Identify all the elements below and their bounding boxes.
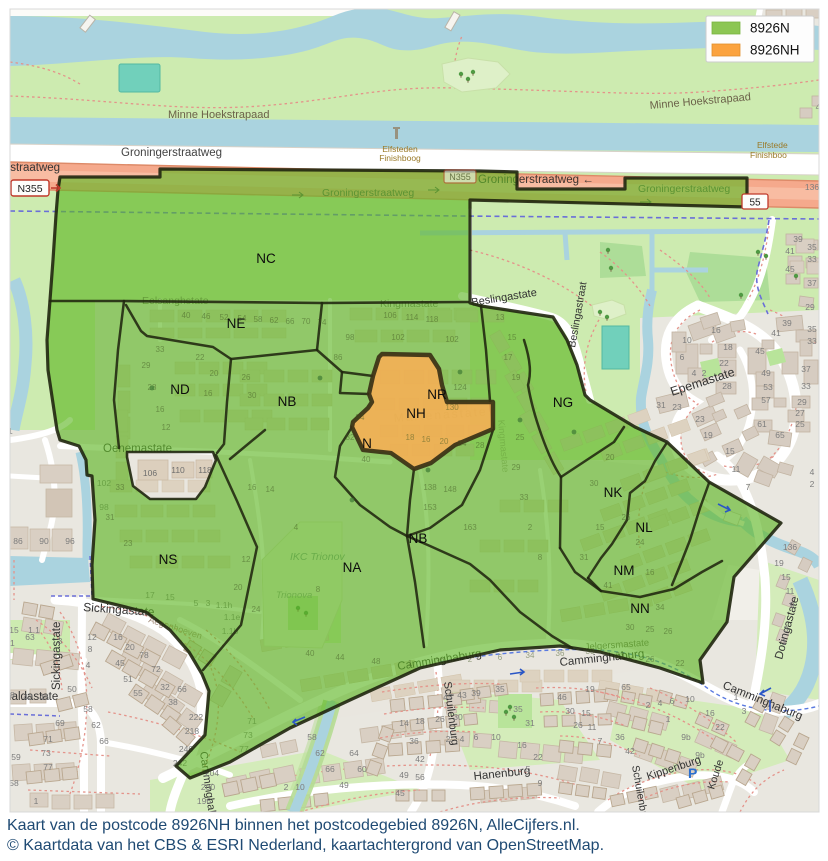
svg-text:24: 24 <box>458 439 467 448</box>
svg-text:42: 42 <box>415 754 425 764</box>
svg-text:Finishboo: Finishboo <box>750 150 787 160</box>
svg-text:40: 40 <box>182 311 191 320</box>
svg-text:P: P <box>688 765 697 781</box>
svg-text:26: 26 <box>664 627 673 636</box>
svg-text:30: 30 <box>565 706 575 716</box>
svg-text:2: 2 <box>702 368 707 378</box>
svg-text:Elfstede: Elfstede <box>757 140 788 150</box>
svg-text:218: 218 <box>185 726 199 736</box>
svg-text:102: 102 <box>391 333 405 342</box>
svg-text:200: 200 <box>201 782 215 792</box>
svg-text:2: 2 <box>284 782 289 792</box>
svg-text:46: 46 <box>202 312 211 321</box>
svg-text:4: 4 <box>86 660 91 670</box>
svg-text:6: 6 <box>498 653 503 662</box>
svg-text:34: 34 <box>656 603 665 612</box>
svg-text:222: 222 <box>189 712 203 722</box>
svg-text:39: 39 <box>782 318 792 328</box>
svg-text:44: 44 <box>336 653 345 662</box>
svg-text:22: 22 <box>719 358 729 368</box>
svg-text:15: 15 <box>581 708 591 718</box>
svg-text:9: 9 <box>538 778 543 788</box>
svg-text:23: 23 <box>672 402 682 412</box>
svg-text:130: 130 <box>445 403 459 412</box>
svg-text:60: 60 <box>357 764 367 774</box>
svg-text:12: 12 <box>242 555 251 564</box>
svg-text:46: 46 <box>39 692 49 702</box>
svg-text:8: 8 <box>316 585 321 594</box>
svg-text:62: 62 <box>315 748 325 758</box>
svg-text:16: 16 <box>204 389 213 398</box>
svg-text:ND: ND <box>170 382 190 397</box>
svg-text:53: 53 <box>763 382 773 392</box>
svg-text:86: 86 <box>13 536 23 546</box>
svg-text:71: 71 <box>43 734 53 744</box>
svg-text:31: 31 <box>106 513 115 522</box>
svg-text:66: 66 <box>99 736 109 746</box>
svg-text:15: 15 <box>781 572 791 582</box>
svg-text:30: 30 <box>590 479 599 488</box>
svg-text:2: 2 <box>446 734 451 744</box>
svg-text:16: 16 <box>248 483 257 492</box>
svg-text:19: 19 <box>774 558 784 568</box>
svg-text:45: 45 <box>785 264 795 274</box>
svg-text:NH: NH <box>406 406 426 421</box>
svg-text:36: 36 <box>409 736 419 746</box>
svg-text:43: 43 <box>457 690 467 700</box>
svg-text:NE: NE <box>227 316 246 331</box>
svg-text:29: 29 <box>512 463 521 472</box>
svg-text:11: 11 <box>588 722 597 732</box>
svg-text:NB: NB <box>278 394 297 409</box>
svg-text:30: 30 <box>453 712 463 722</box>
svg-text:19: 19 <box>703 430 713 440</box>
svg-text:3: 3 <box>784 624 789 634</box>
svg-text:6: 6 <box>474 732 479 742</box>
svg-text:36: 36 <box>615 732 625 742</box>
svg-text:19: 19 <box>512 373 521 382</box>
svg-text:2: 2 <box>528 523 533 532</box>
svg-text:18: 18 <box>415 716 425 726</box>
svg-text:24: 24 <box>636 538 645 547</box>
svg-text:Minne Hoekstrapaad: Minne Hoekstrapaad <box>168 109 270 121</box>
svg-text:35: 35 <box>807 324 817 334</box>
svg-text:11: 11 <box>732 464 741 474</box>
svg-text:12: 12 <box>162 423 171 432</box>
svg-text:N355: N355 <box>17 183 42 195</box>
svg-text:33: 33 <box>156 345 165 354</box>
svg-text:45: 45 <box>443 692 453 702</box>
svg-text:8: 8 <box>538 553 543 562</box>
svg-text:9b: 9b <box>681 732 691 742</box>
svg-text:27: 27 <box>795 408 805 418</box>
svg-text:1: 1 <box>666 714 671 724</box>
svg-text:35: 35 <box>495 684 505 694</box>
svg-text:31: 31 <box>656 400 666 410</box>
svg-text:9b: 9b <box>695 750 705 760</box>
svg-text:55: 55 <box>133 688 143 698</box>
svg-text:18: 18 <box>406 433 415 442</box>
svg-text:26: 26 <box>573 720 583 730</box>
svg-text:55: 55 <box>749 198 761 209</box>
svg-text:22: 22 <box>196 353 205 362</box>
svg-text:30: 30 <box>626 623 635 632</box>
svg-text:58: 58 <box>83 704 93 714</box>
svg-text:45: 45 <box>115 658 125 668</box>
svg-text:20: 20 <box>606 453 615 462</box>
svg-text:82: 82 <box>346 433 355 442</box>
svg-text:106: 106 <box>383 311 397 320</box>
svg-text:2: 2 <box>810 479 815 489</box>
svg-text:66: 66 <box>177 684 187 694</box>
svg-text:13: 13 <box>496 313 505 322</box>
svg-text:Groningerstraatweg: Groningerstraatweg <box>121 147 222 159</box>
svg-text:36: 36 <box>556 649 565 658</box>
svg-text:33: 33 <box>807 336 817 346</box>
svg-text:15: 15 <box>508 333 517 342</box>
svg-text:40: 40 <box>306 649 315 658</box>
svg-text:29: 29 <box>805 302 815 312</box>
svg-text:61: 61 <box>757 419 767 429</box>
svg-text:148: 148 <box>443 485 457 494</box>
svg-text:NB: NB <box>409 531 428 546</box>
svg-text:50: 50 <box>67 684 77 694</box>
svg-text:56: 56 <box>415 772 425 782</box>
svg-text:33: 33 <box>520 493 529 502</box>
svg-text:Sickingastate: Sickingastate <box>51 622 63 690</box>
svg-text:58: 58 <box>307 732 317 742</box>
svg-text:70: 70 <box>302 317 311 326</box>
svg-text:NK: NK <box>604 485 623 500</box>
svg-text:29: 29 <box>797 397 807 407</box>
svg-text:33: 33 <box>807 254 817 264</box>
svg-text:N: N <box>362 436 372 451</box>
svg-text:NC: NC <box>256 251 276 266</box>
svg-text:114: 114 <box>406 313 419 322</box>
svg-text:6: 6 <box>670 696 675 706</box>
svg-text:32: 32 <box>160 682 170 692</box>
svg-text:10: 10 <box>295 782 305 792</box>
svg-text:73: 73 <box>41 748 51 758</box>
svg-text:78: 78 <box>139 650 149 660</box>
svg-text:49: 49 <box>399 770 409 780</box>
svg-text:N355: N355 <box>449 172 471 182</box>
svg-text:12: 12 <box>87 632 97 642</box>
svg-text:90: 90 <box>39 536 49 546</box>
svg-text:14: 14 <box>266 485 275 494</box>
svg-text:6: 6 <box>680 352 685 362</box>
svg-text:20: 20 <box>440 437 449 446</box>
svg-text:16: 16 <box>156 405 165 414</box>
svg-text:26: 26 <box>435 714 445 724</box>
svg-text:2: 2 <box>646 700 651 710</box>
svg-text:196: 196 <box>197 796 211 806</box>
svg-text:15: 15 <box>725 446 735 456</box>
svg-text:2: 2 <box>468 655 473 664</box>
svg-text:8926N: 8926N <box>750 21 790 36</box>
svg-text:57: 57 <box>761 395 771 405</box>
svg-text:65: 65 <box>775 430 785 440</box>
svg-text:1: 1 <box>408 659 413 668</box>
svg-text:8: 8 <box>88 644 93 654</box>
svg-text:163: 163 <box>463 523 477 532</box>
svg-text:74: 74 <box>318 318 327 327</box>
svg-text:58: 58 <box>254 315 263 324</box>
svg-text:62: 62 <box>91 720 101 730</box>
svg-text:16: 16 <box>711 325 721 335</box>
svg-text:48: 48 <box>372 657 381 666</box>
svg-text:4: 4 <box>658 698 663 708</box>
svg-text:98: 98 <box>346 333 355 342</box>
svg-text:20: 20 <box>125 642 135 652</box>
svg-text:62: 62 <box>270 316 279 325</box>
svg-text:23: 23 <box>616 651 625 660</box>
svg-text:49: 49 <box>339 780 349 790</box>
svg-text:26: 26 <box>646 655 655 664</box>
svg-text:19: 19 <box>585 684 595 694</box>
svg-text:136: 136 <box>805 182 819 192</box>
svg-text:10: 10 <box>682 335 692 345</box>
svg-text:66: 66 <box>325 764 335 774</box>
svg-text:1: 1 <box>782 637 787 647</box>
svg-text:41: 41 <box>771 328 781 338</box>
svg-text:96: 96 <box>65 536 75 546</box>
svg-text:118: 118 <box>426 315 439 324</box>
svg-text:59: 59 <box>11 752 21 762</box>
svg-text:37: 37 <box>801 364 811 374</box>
svg-text:35: 35 <box>513 704 523 714</box>
svg-text:31: 31 <box>580 553 589 562</box>
svg-text:33: 33 <box>801 381 811 391</box>
svg-text:31: 31 <box>525 718 535 728</box>
svg-text:37: 37 <box>807 278 817 288</box>
svg-text:26: 26 <box>242 373 251 382</box>
svg-text:30: 30 <box>436 657 445 666</box>
svg-text:14: 14 <box>399 718 409 728</box>
svg-text:102: 102 <box>445 335 459 344</box>
svg-text:41: 41 <box>604 581 613 590</box>
svg-text:28: 28 <box>476 441 485 450</box>
svg-text:41: 41 <box>785 246 795 256</box>
svg-text:30: 30 <box>248 391 257 400</box>
svg-text:20: 20 <box>234 583 243 592</box>
svg-text:30: 30 <box>586 647 595 656</box>
svg-text:33: 33 <box>116 483 125 492</box>
svg-text:15: 15 <box>9 625 19 635</box>
svg-text:3: 3 <box>742 706 747 716</box>
svg-text:NL: NL <box>635 520 653 535</box>
svg-text:23: 23 <box>695 414 705 424</box>
svg-text:16: 16 <box>113 632 123 642</box>
svg-text:49: 49 <box>761 368 771 378</box>
svg-text:7: 7 <box>598 736 603 746</box>
svg-text:66: 66 <box>286 317 295 326</box>
svg-text:16: 16 <box>646 568 655 577</box>
svg-text:7: 7 <box>746 482 751 492</box>
svg-text:25: 25 <box>795 419 805 429</box>
svg-text:24: 24 <box>252 605 261 614</box>
svg-text:25: 25 <box>516 433 525 442</box>
svg-text:94: 94 <box>356 413 365 422</box>
svg-text:© Kaartdata van het CBS & ESRI: © Kaartdata van het CBS & ESRI Nederland… <box>7 837 604 854</box>
svg-text:17: 17 <box>504 353 513 362</box>
svg-text:64: 64 <box>349 748 359 758</box>
svg-text:11: 11 <box>786 586 795 596</box>
svg-text:40: 40 <box>362 455 371 464</box>
svg-text:22: 22 <box>715 722 725 732</box>
svg-text:16: 16 <box>422 435 431 444</box>
svg-text:Finishboog: Finishboog <box>379 153 421 163</box>
svg-text:39: 39 <box>471 688 481 698</box>
svg-text:9: 9 <box>790 600 795 610</box>
svg-text:NA: NA <box>343 560 362 575</box>
svg-text:10: 10 <box>491 732 501 742</box>
svg-text:16: 16 <box>517 740 527 750</box>
svg-text:NN: NN <box>630 601 650 616</box>
svg-text:15: 15 <box>596 523 605 532</box>
svg-text:69: 69 <box>55 718 65 728</box>
svg-text:63: 63 <box>25 632 35 642</box>
svg-text:8926NH: 8926NH <box>750 43 800 58</box>
svg-text:4: 4 <box>692 368 697 378</box>
svg-text:23: 23 <box>124 539 133 548</box>
svg-text:16: 16 <box>705 708 715 718</box>
svg-text:26: 26 <box>622 513 631 522</box>
svg-text:136: 136 <box>783 542 797 552</box>
svg-text:86: 86 <box>334 353 343 362</box>
svg-text:106: 106 <box>143 468 157 478</box>
svg-text:NG: NG <box>553 395 573 410</box>
svg-text:4: 4 <box>810 467 815 477</box>
svg-text:153: 153 <box>423 503 437 512</box>
svg-text:Kaart van de postcode 8926NH b: Kaart van de postcode 8926NH binnen het … <box>7 817 580 834</box>
svg-text:22: 22 <box>676 659 685 668</box>
svg-text:58: 58 <box>9 778 19 788</box>
svg-text:65: 65 <box>621 682 631 692</box>
svg-text:3: 3 <box>58 636 63 646</box>
svg-text:35: 35 <box>807 242 817 252</box>
svg-text:39: 39 <box>793 234 803 244</box>
svg-text:1: 1 <box>734 692 739 702</box>
svg-text:18: 18 <box>723 342 733 352</box>
svg-text:77: 77 <box>43 762 53 772</box>
svg-text:46: 46 <box>557 692 567 702</box>
svg-text:NM: NM <box>614 563 635 578</box>
svg-text:45: 45 <box>395 788 405 798</box>
svg-text:25: 25 <box>646 625 655 634</box>
svg-text:51: 51 <box>123 674 133 684</box>
svg-text:5: 5 <box>526 764 531 774</box>
svg-text:138: 138 <box>423 483 437 492</box>
svg-text:20: 20 <box>210 369 219 378</box>
svg-text:28: 28 <box>722 381 732 391</box>
svg-text:NS: NS <box>159 552 178 567</box>
svg-text:110: 110 <box>171 465 185 475</box>
svg-text:45: 45 <box>755 346 765 356</box>
svg-text:NR: NR <box>427 387 447 402</box>
svg-text:22: 22 <box>533 752 543 762</box>
svg-text:42: 42 <box>625 746 635 756</box>
svg-text:4: 4 <box>294 523 299 532</box>
svg-text:42: 42 <box>23 692 33 702</box>
svg-text:34: 34 <box>526 651 535 660</box>
svg-text:38: 38 <box>168 697 178 707</box>
svg-text:10: 10 <box>685 694 695 704</box>
svg-text:72: 72 <box>151 664 161 674</box>
svg-text:4: 4 <box>460 734 465 744</box>
svg-text:29: 29 <box>142 361 151 370</box>
svg-text:124: 124 <box>453 383 467 392</box>
svg-text:1: 1 <box>34 796 39 806</box>
